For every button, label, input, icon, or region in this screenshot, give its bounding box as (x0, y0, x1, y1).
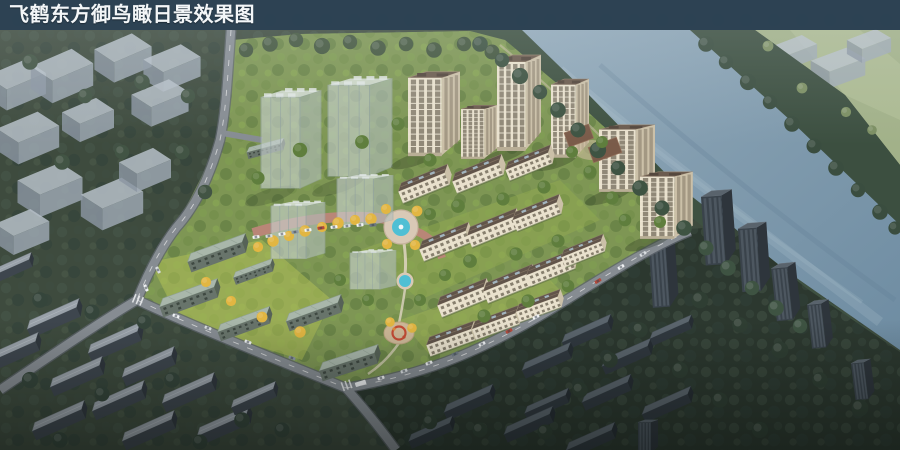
rendering-title: 飞鹤东方御鸟瞰日景效果图 (9, 0, 255, 30)
aerial-scene (0, 0, 900, 450)
title-bar: 飞鹤东方御鸟瞰日景效果图 (0, 0, 900, 30)
small-pool (397, 273, 414, 290)
rendering-canvas: 飞鹤东方御鸟瞰日景效果图 (0, 0, 900, 450)
